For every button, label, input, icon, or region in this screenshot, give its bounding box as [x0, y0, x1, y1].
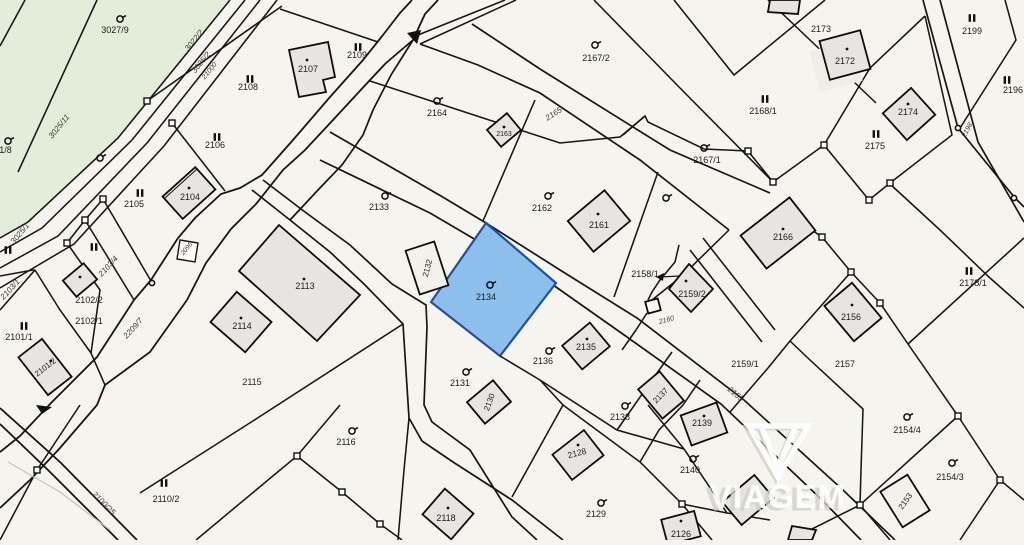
svg-text:2138: 2138: [610, 412, 630, 422]
svg-text:2167/2: 2167/2: [582, 53, 610, 63]
svg-text:2172: 2172: [835, 56, 855, 66]
svg-text:2118: 2118: [436, 513, 455, 523]
svg-text:2107: 2107: [298, 64, 318, 74]
svg-text:2173: 2173: [811, 24, 831, 34]
svg-text:2102/1: 2102/1: [75, 316, 103, 326]
svg-text:2101/1: 2101/1: [5, 332, 33, 342]
svg-text:2175: 2175: [865, 141, 885, 151]
svg-text:21/8: 21/8: [0, 145, 12, 155]
svg-text:2129: 2129: [586, 509, 606, 519]
svg-text:2135: 2135: [576, 342, 596, 352]
svg-text:2136: 2136: [533, 356, 553, 366]
svg-text:2131: 2131: [450, 378, 470, 388]
svg-text:2115: 2115: [242, 377, 261, 387]
svg-text:3027/9: 3027/9: [101, 25, 129, 35]
svg-text:2196: 2196: [1003, 85, 1023, 95]
svg-text:2178/1: 2178/1: [959, 278, 987, 288]
svg-text:VIAGEM: VIAGEM: [710, 478, 846, 515]
svg-text:2157: 2157: [835, 359, 855, 369]
svg-text:2126: 2126: [671, 529, 691, 539]
svg-text:2159/1: 2159/1: [731, 359, 759, 369]
svg-text:2102/2: 2102/2: [75, 295, 103, 305]
svg-text:2167/1: 2167/1: [693, 155, 721, 165]
svg-text:2109: 2109: [347, 50, 367, 60]
svg-text:2159/2: 2159/2: [678, 289, 706, 299]
svg-text:2134: 2134: [476, 292, 496, 302]
svg-text:2116: 2116: [336, 437, 355, 447]
svg-text:2105: 2105: [124, 199, 144, 209]
svg-text:2161: 2161: [589, 220, 609, 230]
svg-text:2106: 2106: [205, 140, 225, 150]
svg-text:2158/1: 2158/1: [631, 269, 659, 279]
svg-text:2110/2: 2110/2: [153, 494, 180, 504]
svg-text:2164: 2164: [427, 108, 447, 118]
svg-text:2199: 2199: [962, 26, 982, 36]
svg-text:2156: 2156: [841, 312, 861, 322]
svg-text:2113: 2113: [295, 281, 314, 291]
svg-text:2140: 2140: [680, 465, 700, 475]
svg-text:2162: 2162: [532, 203, 552, 213]
svg-text:2108: 2108: [238, 82, 258, 92]
svg-text:2133: 2133: [369, 202, 389, 212]
svg-text:2139: 2139: [692, 418, 712, 428]
svg-text:2168/1: 2168/1: [749, 106, 777, 116]
svg-text:2154/4: 2154/4: [893, 425, 921, 435]
svg-text:2174: 2174: [898, 107, 918, 117]
svg-text:2114: 2114: [232, 321, 251, 331]
svg-text:2154/3: 2154/3: [936, 472, 964, 482]
svg-text:2163: 2163: [496, 131, 512, 138]
svg-text:2104: 2104: [180, 192, 200, 202]
svg-text:2166: 2166: [773, 232, 793, 242]
